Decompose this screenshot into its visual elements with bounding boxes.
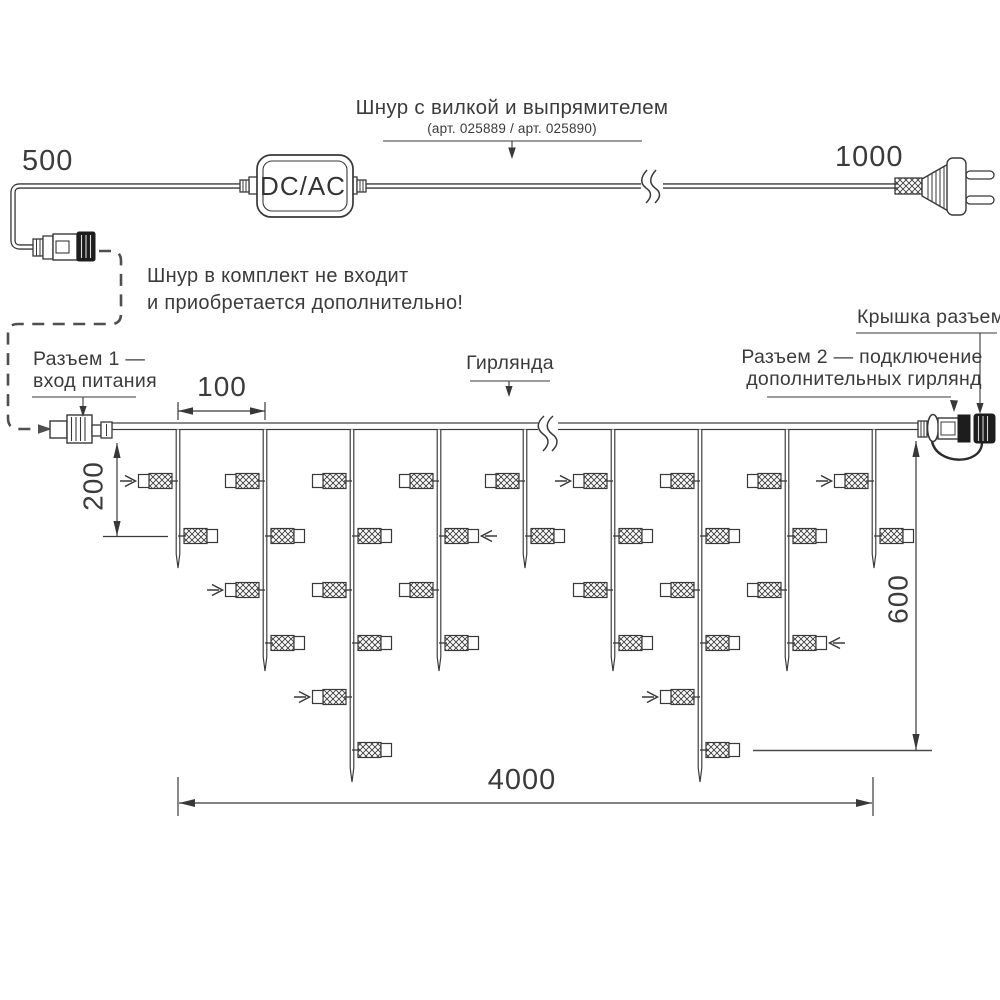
bulb-tip	[294, 637, 305, 650]
dim-100-label: 100	[197, 372, 247, 401]
led-bulb-icon	[619, 636, 642, 651]
led-bulb-icon	[619, 529, 642, 544]
dim-1000-label: 1000	[835, 142, 904, 172]
garland-drop	[555, 430, 653, 672]
garland-break-symbol	[538, 416, 558, 451]
bulb-tip	[139, 475, 150, 488]
connector2-label-line1: Разъем 2 — подключение	[741, 347, 982, 367]
connector2	[918, 414, 995, 460]
garland-drop	[816, 430, 914, 569]
bulb-tip	[400, 475, 411, 488]
bulb-tip	[574, 475, 585, 488]
led-bulb-icon	[410, 583, 433, 598]
bulb-tip	[661, 584, 672, 597]
bulb-tip	[903, 530, 914, 543]
bulb-tip	[381, 530, 392, 543]
led-bulb-icon	[445, 636, 468, 651]
led-bulb-icon	[149, 474, 172, 489]
garland-wire	[112, 423, 918, 430]
connector-cap	[974, 414, 995, 443]
bulb-tip	[468, 530, 479, 543]
bulb-tip	[486, 475, 497, 488]
bulb-tip	[729, 744, 740, 757]
led-bulb-icon	[184, 529, 207, 544]
bulb-tip	[226, 475, 237, 488]
bulb-tip	[381, 637, 392, 650]
bulb-tip	[816, 530, 827, 543]
garland-drop	[120, 430, 218, 569]
bulb-tip	[729, 637, 740, 650]
dcac-label: DC/AC	[252, 155, 354, 217]
note-line2: и приобретается дополнительно!	[147, 293, 463, 314]
led-bulb-icon	[584, 474, 607, 489]
dim-4000-label: 4000	[488, 765, 557, 795]
led-bulb-icon	[671, 474, 694, 489]
garland-drops	[120, 430, 914, 783]
led-bulb-icon	[323, 583, 346, 598]
bulb-tip	[313, 691, 324, 704]
bulb-tip	[661, 691, 672, 704]
power-input-plug-connector	[33, 232, 95, 261]
led-bulb-icon	[236, 583, 259, 598]
dimension-200	[103, 443, 168, 537]
dim-600-label: 600	[883, 574, 912, 624]
led-bulb-icon	[323, 474, 346, 489]
power-cord	[13, 186, 898, 247]
garland-drop	[207, 430, 305, 672]
bulb-tip	[313, 475, 324, 488]
bulb-tip	[468, 637, 479, 650]
note-line1: Шнур в комплект не входит	[147, 266, 408, 287]
bulb-tip	[226, 584, 237, 597]
led-bulb-icon	[531, 529, 554, 544]
dim-500-label: 500	[22, 146, 73, 176]
bulb-tip	[748, 475, 759, 488]
led-bulb-icon	[358, 743, 381, 758]
led-bulb-icon	[671, 583, 694, 598]
led-bulb-icon	[410, 474, 433, 489]
power-plug-icon	[895, 158, 994, 216]
diagram-page: 500 1000 DC/AC Шнур с вилкой и выпрямите…	[0, 0, 1000, 1000]
bulb-tip	[381, 744, 392, 757]
bulb-tip	[748, 584, 759, 597]
led-bulb-icon	[271, 529, 294, 544]
cap-label: Крышка разъема	[857, 307, 1000, 327]
bulb-tip	[574, 584, 585, 597]
cord-break-symbol	[641, 169, 663, 203]
bulb-tip	[294, 530, 305, 543]
led-bulb-icon	[358, 636, 381, 651]
bulb-tip	[729, 530, 740, 543]
connector1-label-line2: вход питания	[33, 371, 157, 391]
led-bulb-icon	[706, 529, 729, 544]
connector2-label-line2: дополнительных гирлянд	[746, 369, 982, 389]
led-bulb-icon	[880, 529, 903, 544]
connector1-leader	[32, 397, 136, 417]
dim-200-label: 200	[78, 461, 107, 511]
led-bulb-icon	[671, 690, 694, 705]
led-bulb-icon	[584, 583, 607, 598]
bulb-tip	[400, 584, 411, 597]
led-bulb-icon	[271, 636, 294, 651]
led-bulb-icon	[758, 474, 781, 489]
led-bulb-icon	[793, 529, 816, 544]
garland-drop	[642, 430, 740, 783]
led-bulb-icon	[358, 529, 381, 544]
garland-label-leader	[470, 381, 550, 397]
bulb-tip	[642, 530, 653, 543]
led-bulb-icon	[845, 474, 868, 489]
dimension-100	[178, 402, 265, 420]
bulb-tip	[661, 475, 672, 488]
bulb-tip	[207, 530, 218, 543]
cord-sku: (арт. 025889 / арт. 025890)	[427, 122, 597, 136]
led-bulb-icon	[236, 474, 259, 489]
led-bulb-icon	[706, 743, 729, 758]
led-bulb-icon	[706, 636, 729, 651]
connector1-label-line1: Разъем 1 —	[33, 349, 145, 369]
cord-title: Шнур с вилкой и выпрямителем	[356, 97, 669, 119]
garland-drop	[748, 430, 846, 672]
led-bulb-icon	[758, 583, 781, 598]
cord-title-leader	[383, 141, 642, 159]
led-bulb-icon	[793, 636, 816, 651]
connector1	[50, 415, 112, 443]
bulb-tip	[642, 637, 653, 650]
bulb-tip	[554, 530, 565, 543]
garland-drop	[400, 430, 498, 672]
garland-drop	[294, 430, 392, 783]
bulb-tip	[313, 584, 324, 597]
led-bulb-icon	[445, 529, 468, 544]
led-bulb-icon	[323, 690, 346, 705]
bulb-tip	[816, 637, 827, 650]
led-bulb-icon	[496, 474, 519, 489]
garland-label: Гирлянда	[466, 353, 554, 373]
bulb-tip	[835, 475, 846, 488]
connector2-leader	[767, 397, 958, 412]
not-included-dashed-path	[8, 251, 121, 434]
